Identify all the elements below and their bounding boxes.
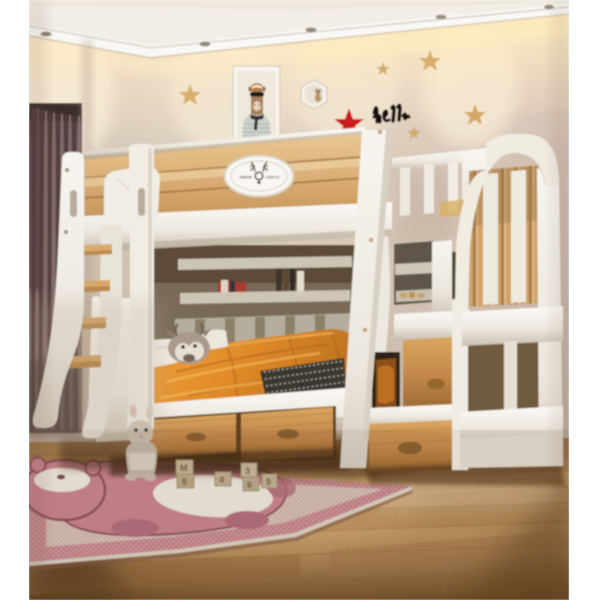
svg-text:JUNIOR: JUNIOR bbox=[239, 176, 252, 180]
svg-text:CASTLE: CASTLE bbox=[266, 176, 280, 180]
